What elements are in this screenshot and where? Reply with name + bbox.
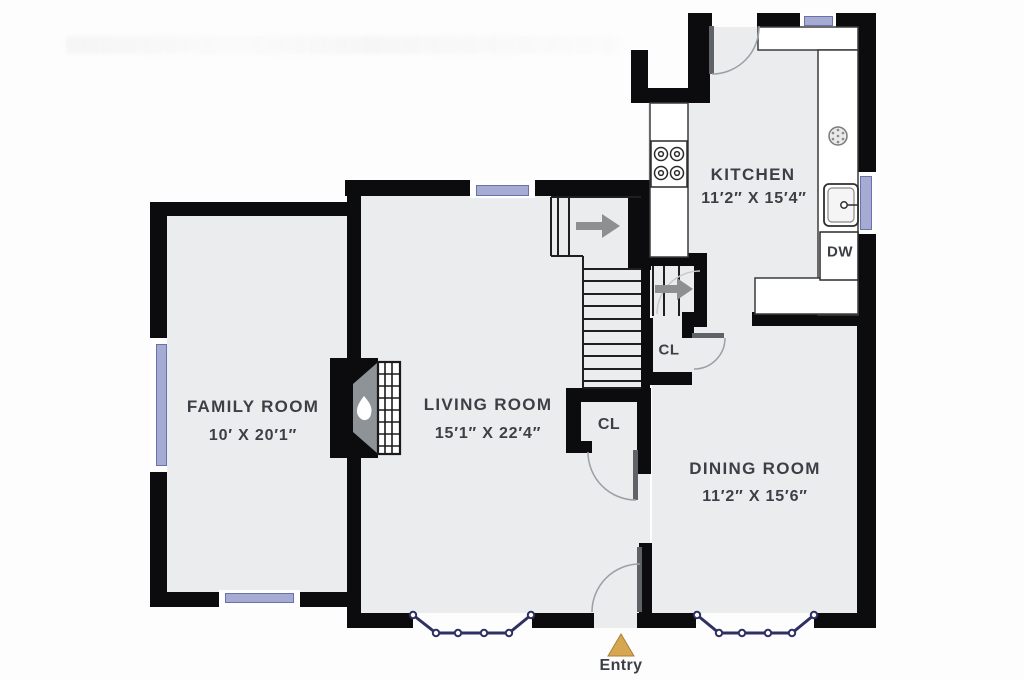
floor-plan: FAMILY ROOM 10′ X 20′1″ LIVING ROOM 15′1… — [0, 0, 1024, 680]
dining-room-dims: 11′2″ X 15′6″ — [702, 488, 807, 506]
closet-label: CL — [598, 416, 620, 434]
bay-window — [694, 612, 817, 636]
entry-label: Entry — [600, 657, 643, 675]
closet-door — [692, 333, 725, 369]
dining-room-label: DINING ROOM — [689, 459, 820, 479]
living-room-label: LIVING ROOM — [424, 395, 553, 415]
family-room-dims: 10′ X 20′1″ — [209, 427, 297, 445]
fireplace — [330, 358, 378, 458]
stairs-up-arrow-icon — [576, 214, 620, 238]
dishwasher-label: DW — [827, 244, 853, 261]
entry-arrow-icon — [608, 634, 634, 656]
sink — [824, 184, 858, 226]
kitchen-label: KITCHEN — [711, 165, 796, 185]
family-room-label: FAMILY ROOM — [187, 397, 319, 417]
garbage-disposal-icon — [829, 127, 847, 145]
bay-window — [410, 612, 534, 636]
stove — [651, 141, 687, 187]
kitchen-dims: 11′2″ X 15′4″ — [701, 190, 806, 208]
entry-door — [592, 547, 642, 612]
hearth — [378, 362, 400, 454]
living-room-dims: 15′1″ X 22′4″ — [435, 425, 541, 443]
kitchen-back-door — [709, 26, 759, 74]
closet-label: CL — [659, 342, 680, 359]
closet-door — [588, 450, 638, 500]
